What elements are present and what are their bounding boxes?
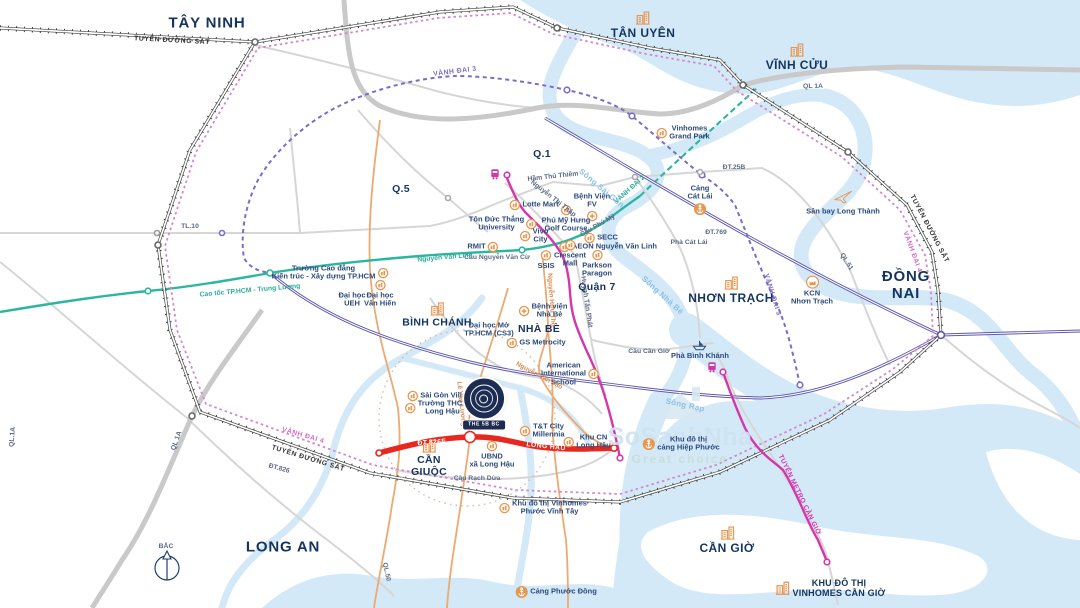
poi-pha-binh-khanh: Phà Bình Khánh [671,338,729,360]
road-nguyen-van-linh-text: Nguyễn Văn Linh [417,252,473,264]
poi-kcn-nhon-trach: KCN Nhơn Trạch [791,276,833,307]
poi-vinhomes-can-gio-text: KHU ĐÔ THỊ VINHOMES CẦN GIỜ [793,578,886,598]
road-vanh-dai-3-top-text: VÀNH ĐAI 3 [433,66,477,79]
poi-ton-duc-thang-text: Tôn Đức Thắng University [469,216,524,233]
poi-dh-ueh-text: Đại học UEH [338,292,365,309]
road-vanh-dai-3-top: VÀNH ĐAI 3 [433,66,477,79]
poi-pha-binh-khanh-text: Phà Bình Khánh [671,352,729,360]
road-ql50: QL.50 [380,562,391,582]
road-cao-toc-trung-luong: Cao tốc TP.HCM - Trung Lương [199,283,300,299]
cross-icon [519,306,530,317]
poi-vinhomes-can-gio: KHU ĐÔ THỊ VINHOMES CẦN GIỜ [775,578,886,598]
poi-ubnd-long-hau-text: UBND xã Long Hậu [469,453,514,470]
poi-icon [405,403,416,414]
district-vinh-cuu-text: VĨNH CỬU [766,59,829,72]
poi-vinhomes-pvt-text: Khu đô thị Vinhomes Phước Vĩnh Tây [512,500,587,517]
poi-long-thanh-airport-text: Sân bay Long Thành [806,207,880,215]
road-dt826-text: ĐT.826 [268,463,291,476]
poi-cd-kien-truc-text: Trường Cao đẳng Kiến trúc - Xây dựng TP.… [272,265,376,282]
road-cau-nguyen-van-cu: Cầu Nguyễn Văn Cừ [464,254,530,262]
poi-tt-city-millennia: T&T City Millennia [519,423,564,440]
district-can-gio-text: CẦN GIỜ [699,542,754,555]
road-long-hau-text: LONG HẬU [526,441,566,453]
district-q1: Q.1 [533,149,551,161]
district-nhon-trach-text: NHƠN TRẠCH [688,292,774,305]
road-pha-cat-lai: Phà Cát Lái [670,239,707,247]
road-vanh-dai-4-left: VÀNH ĐAI 4 [281,426,325,445]
poi-icon [486,441,497,452]
plane-icon [833,186,853,206]
project-logo: THE 5B BC [463,379,505,430]
road-ql1a-top-text: QL 1A [803,83,823,91]
project-logo-label: THE 5B BC [463,421,505,430]
road-dt769: ĐT.769 [705,229,727,237]
road-metro-can-gio: TUYẾN METRO CẦN GIỜ [776,454,822,537]
district-q5-text: Q.5 [392,184,410,196]
project-logo-emblem-icon [464,379,504,419]
poi-vinhomes-pvt: Khu đô thị Vinhomes Phước Vĩnh Tây [499,500,587,517]
road-nguyen-van-linh: Nguyễn Văn Linh [417,252,473,264]
bld-icon [723,275,739,291]
poi-icon [375,280,386,291]
road-dt769-text: ĐT.769 [705,229,727,237]
poi-tt-city-millennia-text: T&T City Millennia [532,423,564,440]
poi-bv-nha-be: Bệnh viện Nhà Bè [519,303,568,320]
poi-hiep-phuoc: Khu đô thị cảng Hiệp Phước [642,436,719,453]
road-railway-top: TUYẾN ĐƯỜNG SẮT [134,35,210,47]
district-can-giuoc-text: CẦN GIUỘC [411,455,447,479]
road-cao-toc-trung-luong-text: Cao tốc TP.HCM - Trung Lương [199,283,300,299]
bld-icon [775,580,791,596]
poi-ubnd-long-hau: UBND xã Long Hậu [469,441,514,470]
region-long-an-text: LONG AN [246,540,320,557]
compass-north: BẮC [159,543,174,551]
road-dt25b: ĐT.25B [723,164,746,172]
district-binh-chanh-text: BÌNH CHÁNH [402,318,472,330]
river-song-nha-be: Sông Nhà Bè [639,275,684,317]
road-ql50-text: QL.50 [380,562,391,582]
map-labels-layer: TÂY NINHTÂN UYÊNVĨNH CỬUĐỒNG NAINHƠN TRẠ… [0,0,1080,608]
poi-cang-phuoc-dong-text: Cảng Phước Đông [530,588,597,596]
road-vanh-dai-4-left-text: VÀNH ĐAI 4 [281,426,325,445]
poi-icon [564,240,575,251]
poi-cang-phuoc-dong: Cảng Phước Đông [515,586,597,599]
poi-long-thanh-airport: Sân bay Long Thành [806,186,880,215]
river-song-rap-text: Sông Rạp [665,397,706,414]
bld-icon [719,525,735,541]
river-song-rap: Sông Rạp [665,397,706,414]
district-q5: Q.5 [392,184,410,196]
poi-kcn-long-hau: Khu CN Long Hậu [563,434,611,451]
road-ql1a-edge-text: QL.1A [8,427,17,448]
poi-icon [519,426,530,437]
road-tl10-text: TL.10 [181,223,199,231]
poi-icon [506,338,517,349]
poi-icon [520,231,531,242]
poi-ssis: SSIS [537,250,554,270]
road-ql51: QL.51 [838,252,854,272]
poi-gs-metrocity-text: GS Metrocity [519,339,565,347]
road-ham-thu-thiem-text: Hầm Thủ Thiêm [527,171,579,184]
factory-icon [805,276,818,289]
district-q1-text: Q.1 [533,149,551,161]
road-ql1a-top: QL 1A [803,83,823,91]
road-ql1a-edge: QL.1A [8,427,17,448]
poi-icon [656,128,667,139]
map-canvas: SoSanhNha Great choice THE 5B BC TÂY NIN… [0,0,1080,608]
region-tay-ninh: TÂY NINH [169,16,246,33]
poi-icon [499,503,510,514]
compass-north-text: BẮC [159,543,174,551]
poi-kcn-long-hau-text: Khu CN Long Hậu [576,434,611,451]
road-dt25b-text: ĐT.25B [723,164,746,172]
poi-gs-metrocity: GS Metrocity [506,338,565,349]
district-nhon-trach: NHƠN TRẠCH [688,275,774,305]
poi-parkson-paragon-text: Parkson Paragon [582,262,612,279]
road-long-hau: LONG HẬU [526,441,566,453]
bld-icon [789,42,805,58]
bld-icon [429,301,445,317]
poi-vinhomes-grand-park: Vinhomes Grand Park [656,125,709,142]
district-tan-uyen-text: TÂN UYÊN [611,27,676,40]
poi-ssis-text: SSIS [537,262,554,270]
anchor-icon [642,438,655,451]
poi-dh-van-hien-text: Đại học Văn Hiến [364,292,396,309]
road-railway-top-text: TUYẾN ĐƯỜNG SẮT [134,35,210,47]
poi-parkson-paragon: Parkson Paragon [582,250,612,279]
poi-icon [377,268,388,279]
road-cau-can-gio-text: Cầu Cần Giờ [628,348,669,356]
region-long-an: LONG AN [246,540,320,557]
road-metro-can-gio-text: TUYẾN METRO CẦN GIỜ [776,454,822,537]
poi-dh-mo: Đại học Mở TP.HCM (CS3) [464,322,513,339]
poi-icon [509,200,520,211]
road-cau-nguyen-van-cu-text: Cầu Nguyễn Văn Cừ [464,254,530,262]
district-tan-uyen: TÂN UYÊN [611,10,676,40]
road-cau-can-gio: Cầu Cần Giờ [628,348,669,356]
poi-kcn-nhon-trach-text: KCN Nhơn Trạch [791,290,833,307]
poi-rmit-text: RMIT [467,243,485,251]
district-binh-chanh: BÌNH CHÁNH [402,301,472,330]
road-cau-rach-dua: Cầu Rạch Dừa [454,475,501,483]
anchor-icon [693,202,706,215]
road-cau-rach-dua-text: Cầu Rạch Dừa [454,475,501,483]
region-dong-nai-text: ĐỒNG NAI [882,269,930,303]
anchor-icon [515,586,528,599]
district-vinh-cuu: VĨNH CỬU [766,42,829,72]
road-ham-thu-thiem: Hầm Thủ Thiêm [527,171,579,184]
road-ql1a-bottomleft-text: QL 1A [170,430,184,451]
poi-icon [588,368,599,379]
poi-cang-cat-lai-text: Cảng Cát Lái [687,185,712,202]
region-dong-nai: ĐỒNG NAI [882,269,930,303]
road-tl10: TL.10 [181,223,199,231]
poi-dh-ueh: Đại học UEH [338,292,365,309]
river-song-nha-be-text: Sông Nhà Bè [639,275,684,317]
boat-icon [691,338,708,351]
district-can-gio: CẦN GIỜ [699,525,754,555]
road-ql1a-bottomleft: QL 1A [170,430,184,451]
road-dt826: ĐT.826 [268,463,291,476]
poi-cang-cat-lai: Cảng Cát Lái [687,185,712,216]
poi-icon [488,242,499,253]
poi-dh-van-hien: Đại học Văn Hiến [364,280,396,309]
bld-icon [635,10,651,26]
poi-icon [591,250,602,261]
poi-icon [541,250,552,261]
road-ql51-text: QL.51 [838,252,854,272]
region-tay-ninh-text: TÂY NINH [169,16,246,33]
poi-dh-mo-text: Đại học Mở TP.HCM (CS3) [464,322,513,339]
road-pha-cat-lai-text: Phà Cát Lái [670,239,707,247]
poi-vinhomes-grand-park-text: Vinhomes Grand Park [669,125,709,142]
poi-hiep-phuoc-text: Khu đô thị cảng Hiệp Phước [657,436,719,453]
